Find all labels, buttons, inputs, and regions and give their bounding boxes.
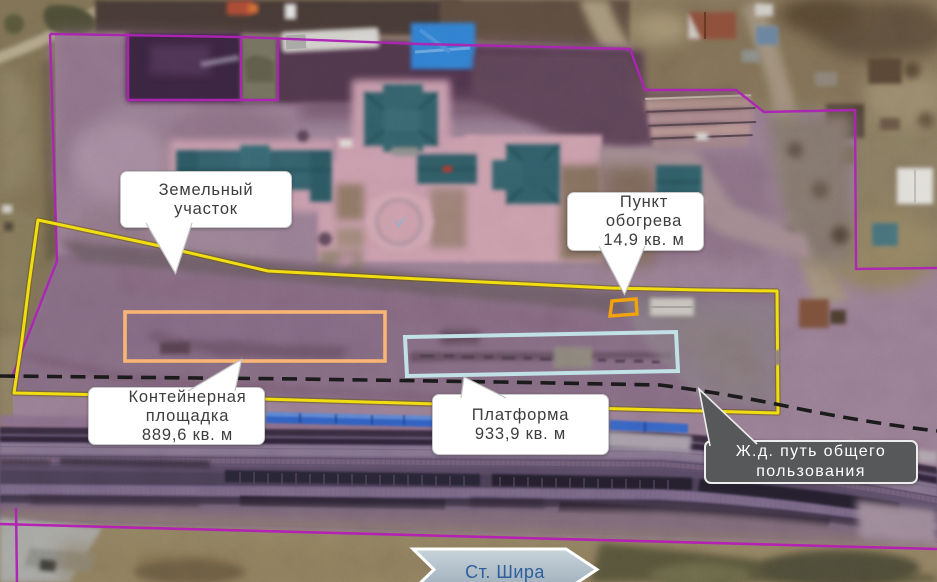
svg-text:Ст. Шира: Ст. Шира xyxy=(465,562,545,582)
